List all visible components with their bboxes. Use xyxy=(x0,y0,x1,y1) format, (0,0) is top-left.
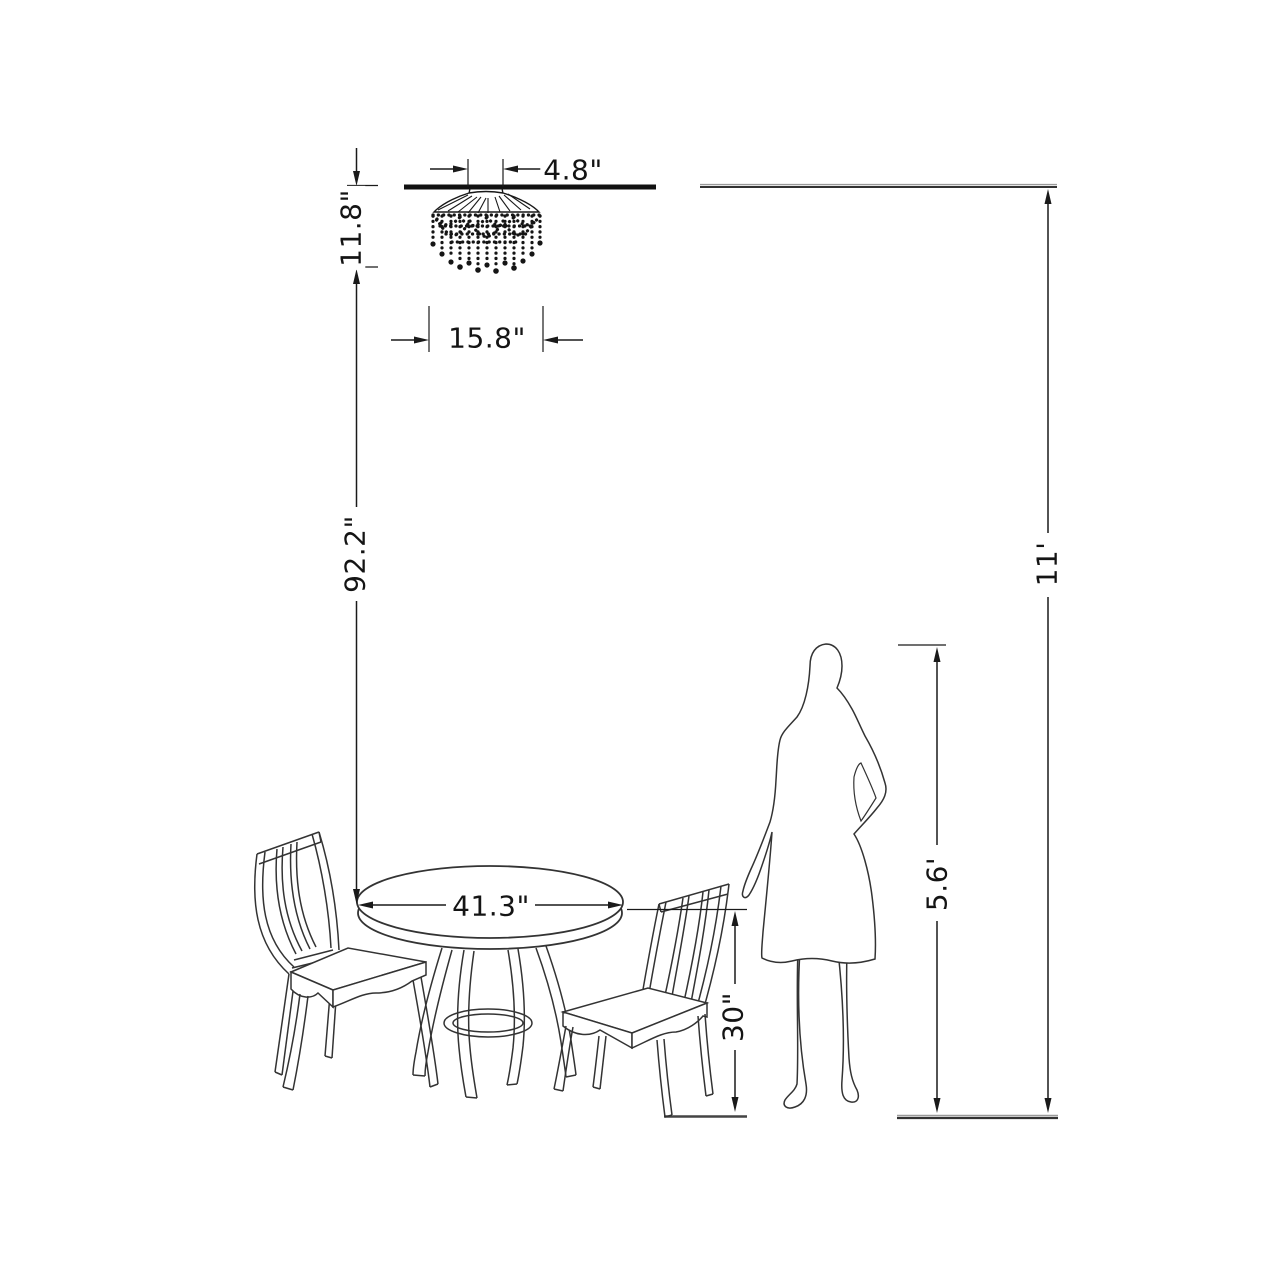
ceiling-line-right xyxy=(700,185,1057,187)
person-left-leg xyxy=(784,950,806,1108)
left-chair-drawing xyxy=(255,832,438,1090)
label-person-height: 5.6' xyxy=(922,854,951,914)
label-chandelier-width: 15.8" xyxy=(445,323,529,352)
label-canopy-width: 4.8" xyxy=(540,155,605,184)
label-table-height: 30" xyxy=(718,989,747,1045)
dimension-diagram: 4.8" 11.8" 15.8" 92.2" 41.3" 30" 5.6' 11… xyxy=(0,0,1280,1280)
label-chandelier-to-table: 92.2" xyxy=(340,512,369,596)
dimension-canopy-width xyxy=(430,159,542,187)
diagram-line-art xyxy=(0,0,1280,1280)
person-right-leg xyxy=(838,951,858,1102)
label-chandelier-height: 11.8" xyxy=(336,186,365,270)
person-silhouette xyxy=(742,644,886,1108)
label-table-diameter: 41.3" xyxy=(449,891,533,920)
floor-line xyxy=(664,1116,1058,1119)
dimension-ceiling-height xyxy=(1045,189,1052,1113)
chandelier-drawing xyxy=(430,188,542,274)
label-ceiling-height: 11' xyxy=(1032,539,1061,590)
